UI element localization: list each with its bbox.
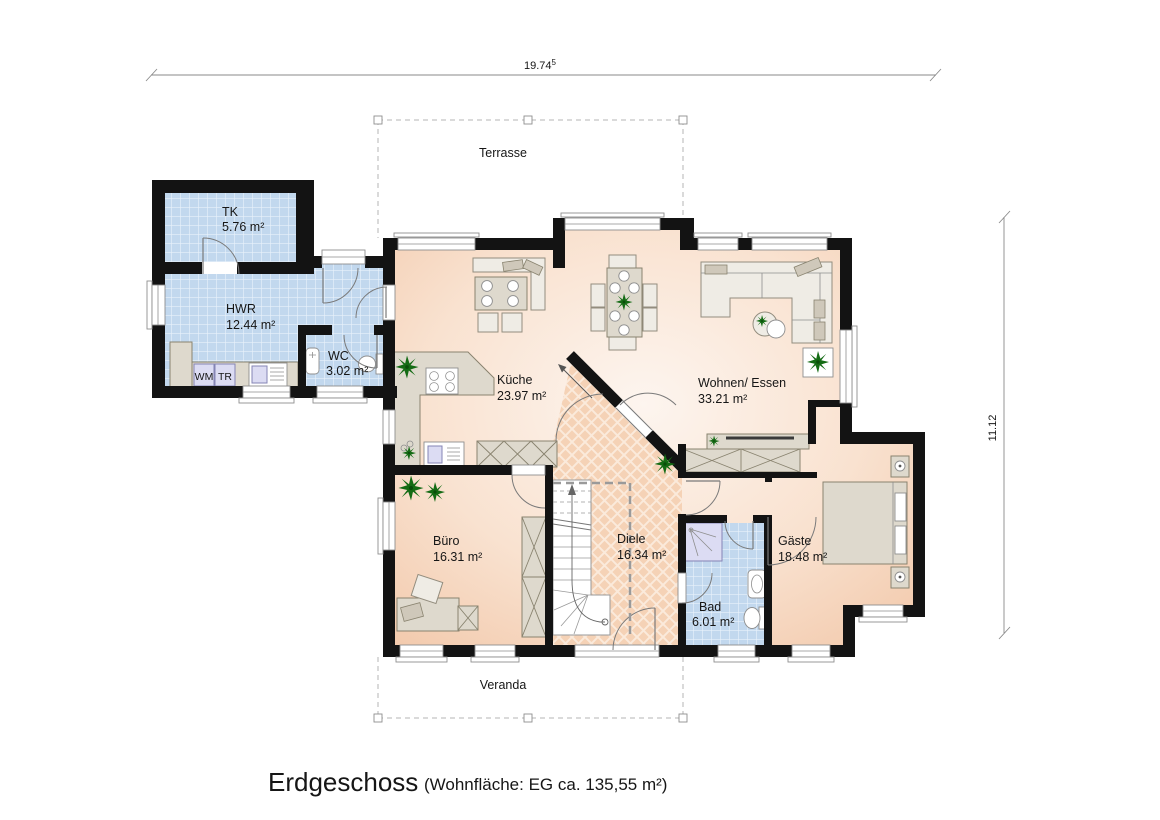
room-label-gaeste-name: Gäste [778,534,811,548]
floorplan-canvas: 19.745 11.12 [0,0,1160,820]
tv-sideboard [707,434,809,449]
wardrobe [683,449,800,472]
footer: Erdgeschoss (Wohnfläche: EG ca. 135,55 m… [268,767,667,797]
toilet [744,608,760,629]
room-label-diele-area: 16.34 m² [617,548,666,562]
dryer-label: TR [218,371,232,383]
veranda-label: Veranda [480,678,527,692]
room-label-bad-area: 6.01 m² [692,615,734,629]
veranda-outline [374,657,687,722]
room-label-bad-name: Bad [699,600,721,614]
room-label-kueche-name: Küche [497,373,532,387]
room-label-kueche-area: 23.97 m² [497,389,546,403]
dimension-right-label: 11.12 [987,415,999,442]
washing-machine-label: WM [195,371,214,383]
room-label-diele-name: Diele [617,532,646,546]
room-label-buero-area: 16.31 m² [433,550,482,564]
room-label-gaeste-area: 18.48 m² [778,550,827,564]
room-label-wc-name: WC [328,349,349,363]
terrace-label: Terrasse [479,146,527,160]
room-label-wohnen-area: 33.21 m² [698,392,747,406]
dimension-top: 19.745 [146,58,941,81]
room-label-tk-area: 5.76 m² [222,220,264,234]
floorplan-page: 19.745 11.12 [0,0,1160,820]
room-label-wc-area: 3.02 m² [326,364,368,378]
room-label-tk-name: TK [222,205,239,219]
floor-title: Erdgeschoss [268,767,418,797]
dimension-top-label: 19.745 [524,58,557,72]
room-label-hwr-area: 12.44 m² [226,318,275,332]
living-area-note: (Wohnfläche: EG ca. 135,55 m²) [424,775,667,794]
dimension-right: 11.12 [987,211,1010,639]
wc-sink [306,348,319,374]
bed [823,482,907,564]
room-label-buero-name: Büro [433,534,459,548]
room-label-wohnen-name: Wohnen/ Essen [698,376,786,390]
room-label-hwr-name: HWR [226,302,256,316]
bath-sink [748,570,766,598]
